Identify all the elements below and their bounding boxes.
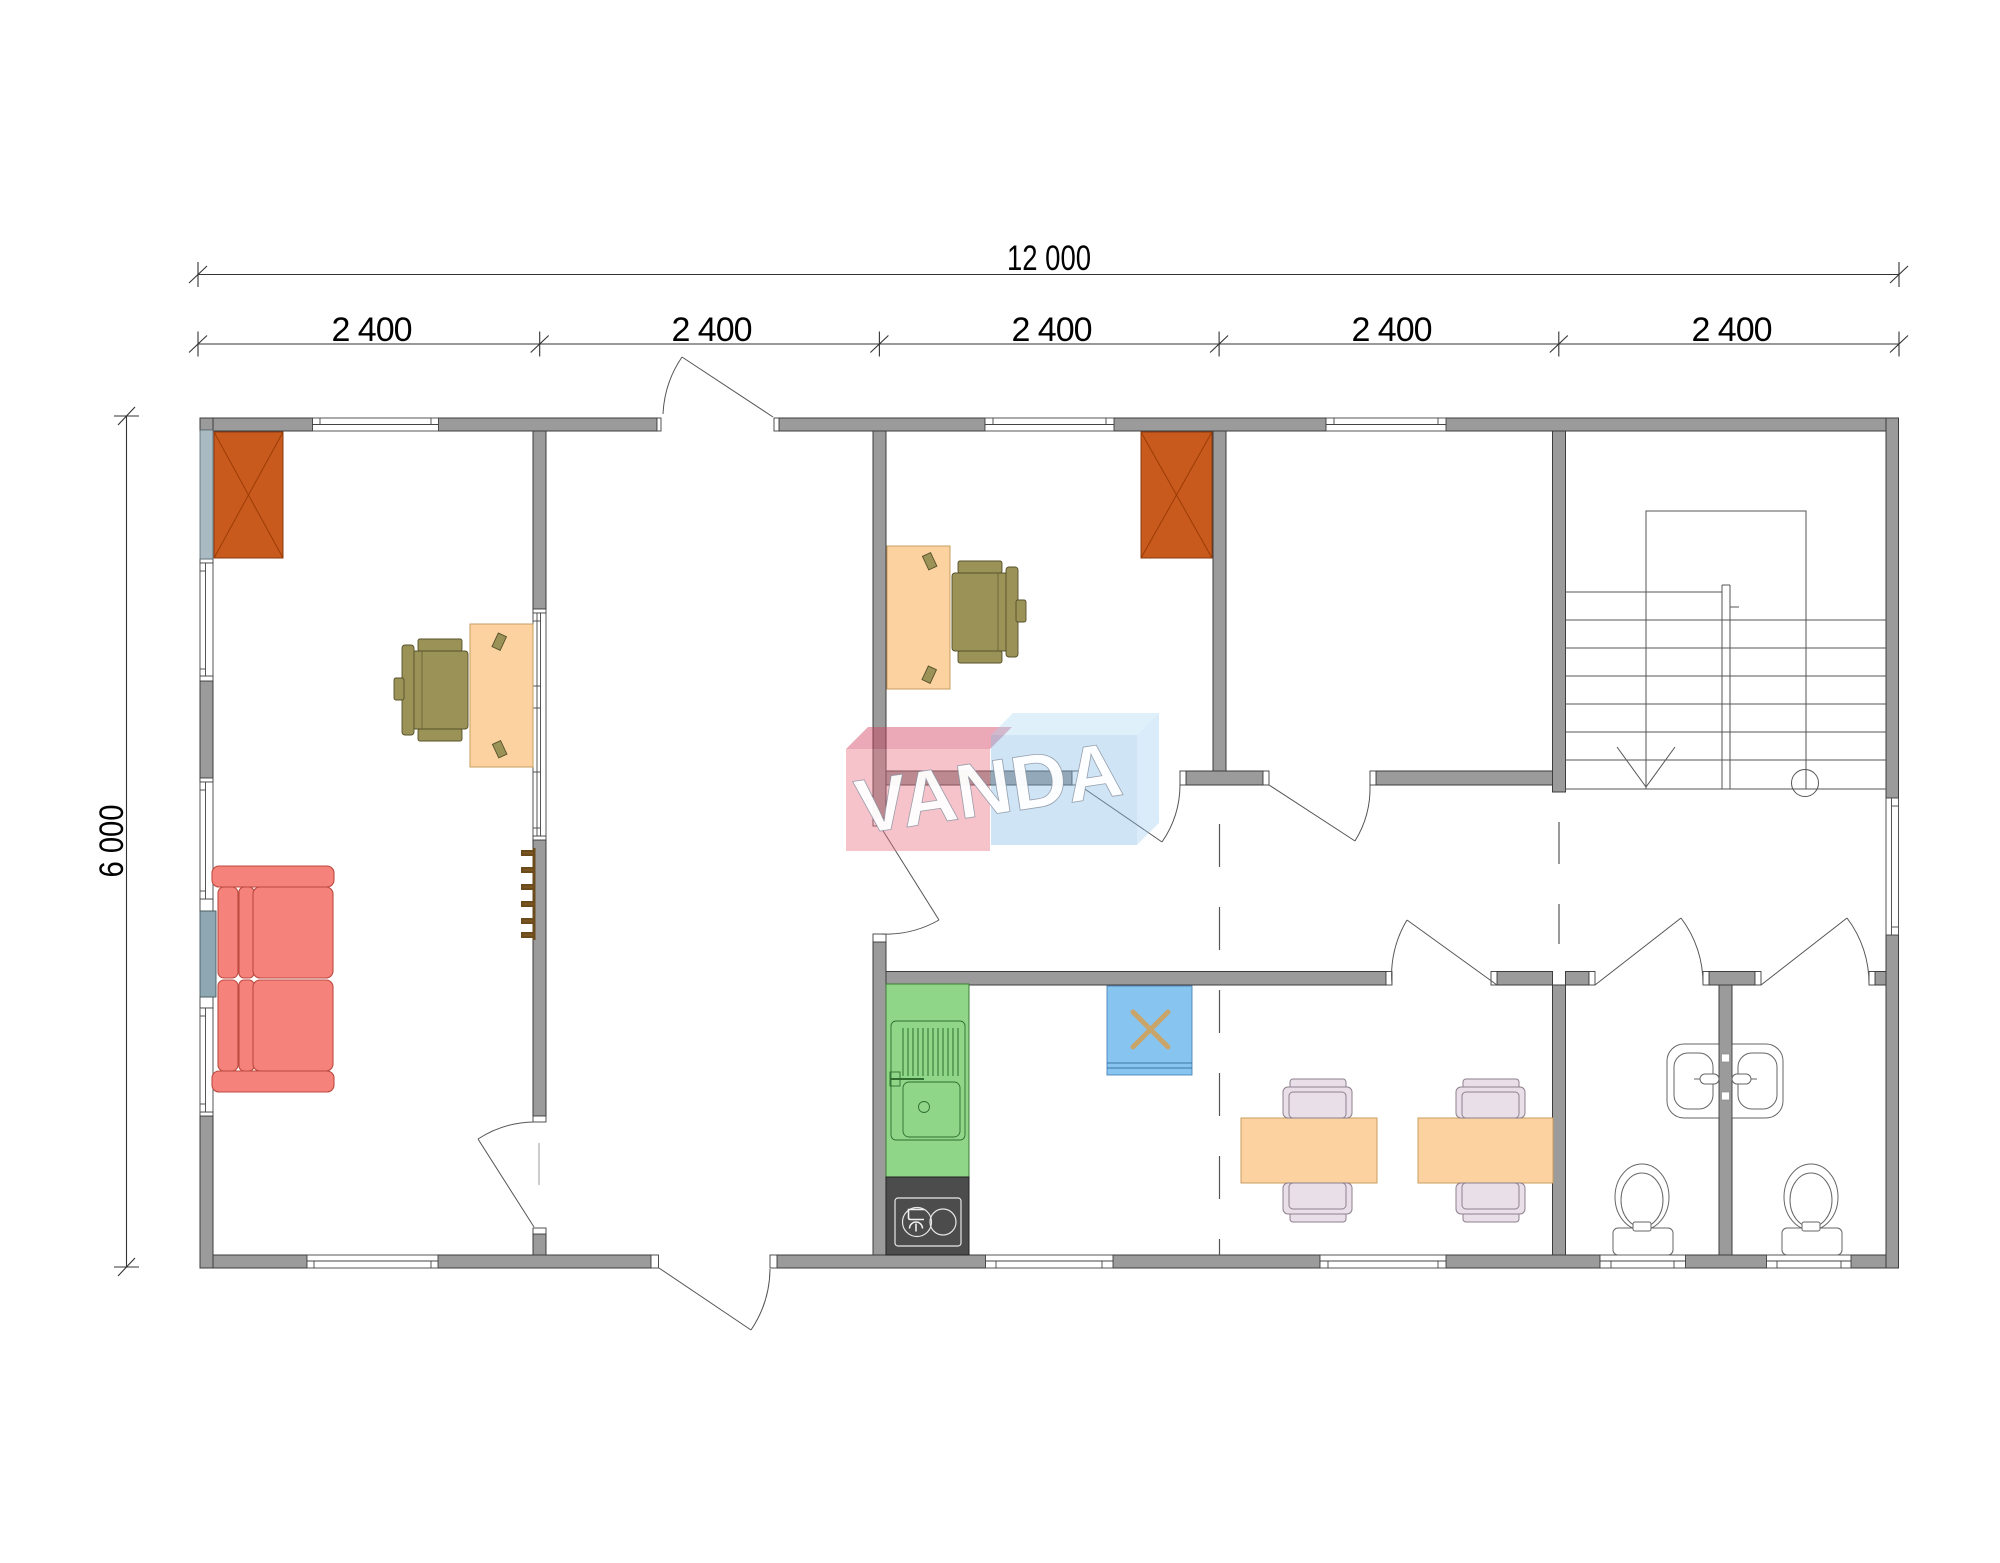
svg-text:2 400: 2 400 (672, 311, 753, 349)
svg-text:2 400: 2 400 (1012, 311, 1093, 349)
svg-text:2 400: 2 400 (1692, 311, 1773, 349)
svg-text:2 400: 2 400 (1352, 311, 1433, 349)
svg-text:2 400: 2 400 (332, 311, 413, 349)
svg-text:12 000: 12 000 (1007, 239, 1091, 278)
svg-text:6 000: 6 000 (93, 805, 131, 878)
